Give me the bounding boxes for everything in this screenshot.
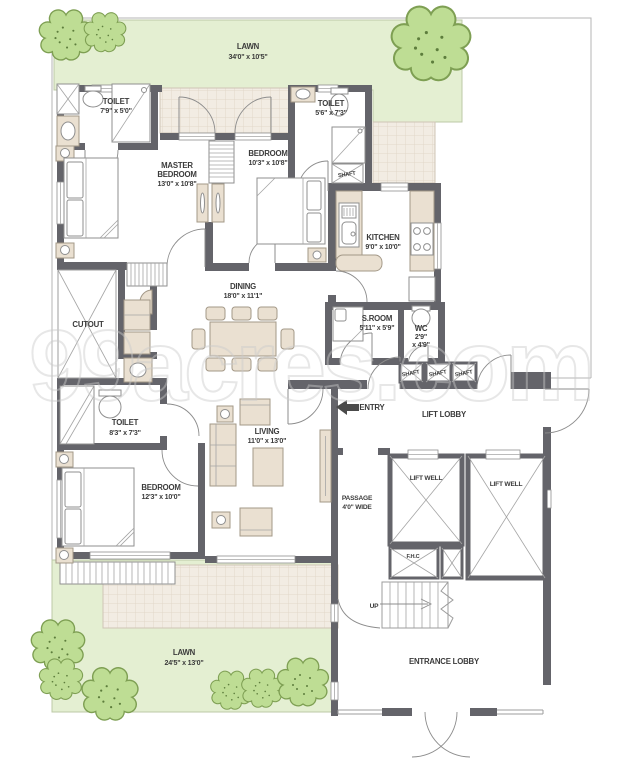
up-label: UP (370, 603, 380, 610)
floor-plan: 99acres.com LAWN 34'0" x 10'5" TOILET 7'… (0, 0, 635, 771)
bedroom-top-label: BEDROOM (248, 149, 287, 158)
lawn-top-label: LAWN (237, 42, 260, 51)
toilet-top-left-label: TOILET (103, 97, 130, 106)
wc-dims1: 2'9" (415, 333, 427, 341)
passage-label1: PASSAGE (342, 495, 373, 502)
watermark: 99acres.com (29, 310, 591, 422)
s-room-dims: 5'11" x 5'9" (360, 324, 395, 332)
dining-dims: 18'0" x 11'1" (224, 292, 263, 300)
cutout-label: CUTOUT (72, 320, 104, 329)
master-bedroom-furniture (56, 146, 224, 258)
bedroom-top-dims: 10'3" x 10'8" (248, 159, 287, 167)
lawn-bottom-dims: 24'5" x 13'0" (164, 659, 203, 667)
tree-icon (39, 10, 92, 60)
fhc-label: F.H.C (407, 554, 420, 560)
bedroom-top-furniture (257, 178, 326, 262)
floor-plan-svg: 99acres.com LAWN 34'0" x 10'5" TOILET 7'… (0, 0, 635, 771)
entrance-threshold (338, 710, 543, 714)
living-label: LIVING (255, 427, 280, 436)
kitchen-label: KITCHEN (366, 233, 400, 242)
kitchen-dims: 9'0" x 10'0" (365, 243, 400, 251)
bedroom-bottom-label: BEDROOM (141, 483, 180, 492)
dining-label: DINING (230, 282, 256, 291)
master-bedroom-label2: BEDROOM (157, 170, 196, 179)
top-right-patio (373, 122, 435, 183)
s-room-label: S.ROOM (362, 314, 392, 323)
tree-icon (84, 13, 126, 52)
lift-well-right-label: LIFT WELL (490, 481, 523, 488)
toilet-top-left-dims: 7'9" x 5'0" (100, 107, 132, 115)
ledge-hatch (60, 562, 175, 584)
toilet-top-right-dims: 5'6" x 7'3" (315, 109, 347, 117)
lift-lobby-label: LIFT LOBBY (422, 410, 467, 419)
lawn-top-dims: 34'0" x 10'5" (228, 53, 267, 61)
wc-dims2: x 4'9" (412, 341, 430, 349)
bedroom-bottom-dims: 12'3" x 10'0" (141, 493, 180, 501)
toilet-mid-label: TOILET (112, 418, 139, 427)
bedroom-bottom-furniture (56, 452, 134, 563)
toilet-top-right-label: TOILET (318, 99, 345, 108)
entry-label: ENTRY (359, 403, 385, 412)
lift-well-left-label: LIFT WELL (410, 475, 443, 482)
utility-hatch (127, 263, 167, 286)
entrance-lobby-label: ENTRANCE LOBBY (409, 657, 480, 666)
toilet-mid-dims: 8'3" x 7'3" (109, 429, 141, 437)
wc-label: WC (415, 324, 428, 333)
toilet-top-left-fixtures (57, 84, 150, 146)
lawn-bottom-label: LAWN (173, 648, 196, 657)
master-bedroom-dims: 13'0" x 10'8" (157, 180, 196, 188)
living-dims: 11'0" x 13'0" (248, 437, 287, 445)
staircase (380, 582, 453, 628)
passage-label2: 4'0" WIDE (342, 504, 372, 511)
wardrobe-hatch (209, 141, 234, 183)
master-bedroom-label1: MASTER (161, 161, 193, 170)
